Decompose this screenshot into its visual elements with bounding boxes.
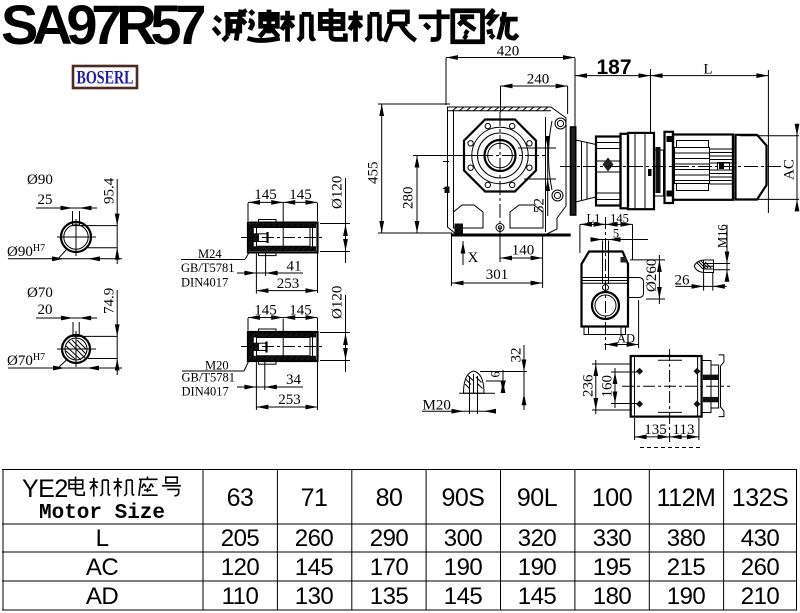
svg-text:X: X: [468, 250, 479, 266]
svg-text:135: 135: [644, 422, 667, 438]
svg-text:195: 195: [593, 554, 632, 581]
svg-text:145: 145: [289, 187, 312, 203]
svg-text:160: 160: [600, 375, 616, 398]
svg-text:25: 25: [38, 192, 53, 208]
svg-text:M16: M16: [716, 224, 730, 248]
svg-text:180: 180: [593, 583, 632, 610]
svg-text:BOSERL: BOSERL: [77, 68, 134, 89]
svg-text:20: 20: [38, 302, 53, 318]
svg-text:300: 300: [444, 525, 483, 552]
svg-text:320: 320: [518, 525, 557, 552]
svg-text:80: 80: [376, 484, 403, 512]
svg-text:290: 290: [370, 525, 409, 552]
svg-text:GB/T5781: GB/T5781: [181, 261, 234, 275]
svg-text:74.9: 74.9: [102, 288, 118, 314]
svg-text:301: 301: [486, 267, 509, 283]
svg-text:AC: AC: [782, 159, 798, 180]
svg-text:L: L: [96, 525, 109, 552]
svg-text:AC: AC: [86, 554, 119, 581]
svg-text:Ø120: Ø120: [330, 286, 346, 319]
svg-text:455: 455: [366, 162, 382, 185]
svg-text:145: 145: [610, 212, 629, 226]
svg-text:190: 190: [444, 554, 483, 581]
svg-text:90S: 90S: [442, 484, 485, 512]
svg-text:Ø90H7: Ø90H7: [7, 243, 45, 260]
svg-text:430: 430: [741, 525, 780, 552]
svg-text:Ø120: Ø120: [330, 176, 346, 209]
svg-text:71: 71: [301, 484, 328, 512]
svg-text:32: 32: [509, 348, 525, 363]
svg-text:130: 130: [295, 583, 334, 610]
svg-text:YE2: YE2: [22, 475, 68, 503]
svg-text:95.4: 95.4: [102, 177, 118, 204]
svg-text:260: 260: [741, 554, 780, 581]
svg-text:100: 100: [592, 484, 632, 512]
svg-text:145: 145: [254, 187, 277, 203]
svg-text:420: 420: [497, 44, 520, 60]
svg-text:DIN4017: DIN4017: [181, 276, 228, 290]
svg-text:DIN4017: DIN4017: [182, 385, 229, 399]
svg-text:5: 5: [613, 227, 619, 241]
svg-text:34: 34: [286, 372, 302, 388]
svg-text:Ø260: Ø260: [644, 259, 660, 292]
svg-text:380: 380: [667, 525, 706, 552]
svg-text:6: 6: [489, 371, 503, 377]
svg-text:63: 63: [227, 484, 254, 512]
svg-text:145: 145: [444, 583, 483, 610]
svg-text:Ø70: Ø70: [27, 285, 53, 301]
svg-text:Ø90: Ø90: [27, 172, 53, 188]
svg-text:52: 52: [532, 198, 548, 213]
svg-text:145: 145: [289, 303, 312, 319]
svg-text:L: L: [703, 62, 712, 78]
svg-text:113: 113: [673, 422, 695, 438]
svg-text:140: 140: [512, 243, 535, 259]
svg-text:215: 215: [667, 554, 706, 581]
svg-text:AD: AD: [617, 332, 635, 346]
svg-text:41: 41: [287, 259, 302, 275]
svg-text:145: 145: [254, 303, 277, 319]
svg-text:M24: M24: [198, 247, 222, 261]
svg-text:120: 120: [221, 554, 260, 581]
svg-text:187: 187: [596, 56, 631, 79]
svg-text:112M: 112M: [657, 484, 716, 512]
svg-text:145: 145: [518, 583, 557, 610]
svg-text:132S: 132S: [732, 484, 788, 512]
svg-text:190: 190: [518, 554, 557, 581]
svg-text:170: 170: [370, 554, 409, 581]
svg-text:90L: 90L: [517, 484, 558, 512]
svg-text:280: 280: [401, 187, 417, 210]
svg-text:210: 210: [741, 583, 780, 610]
svg-text:L1: L1: [587, 212, 601, 226]
svg-text:205: 205: [221, 525, 260, 552]
svg-text:GB/T5781: GB/T5781: [182, 371, 235, 385]
svg-text:236: 236: [581, 374, 597, 397]
svg-text:26: 26: [675, 273, 691, 289]
svg-text:240: 240: [527, 72, 550, 88]
svg-text:253: 253: [277, 276, 300, 292]
svg-text:260: 260: [295, 525, 334, 552]
svg-text:145: 145: [295, 554, 334, 581]
svg-text:Ø70H7: Ø70H7: [7, 352, 45, 369]
svg-text:253: 253: [278, 392, 301, 408]
svg-text:Motor Size: Motor Size: [39, 502, 165, 525]
svg-text:SA97R57: SA97R57: [1, 0, 204, 56]
svg-text:110: 110: [222, 583, 259, 610]
svg-text:AD: AD: [86, 583, 119, 610]
svg-text:135: 135: [370, 583, 409, 610]
svg-text:330: 330: [593, 525, 632, 552]
svg-text:190: 190: [667, 583, 706, 610]
